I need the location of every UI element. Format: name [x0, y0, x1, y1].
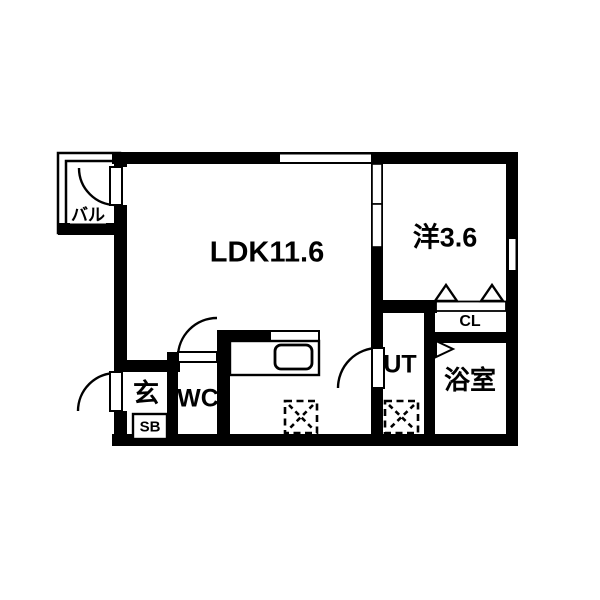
kitchen-sink-icon: [275, 345, 312, 369]
window-right-icon: [508, 238, 517, 271]
washing-machine-space-icon: [385, 401, 418, 433]
room-label-western-room: 洋3.6: [413, 225, 478, 252]
window-top-icon: [279, 154, 373, 164]
room-label-bathroom: 浴室: [444, 367, 496, 393]
appliance-space-icon: [285, 401, 317, 433]
bathroom-door-icon: [436, 341, 453, 357]
wc-walls: [167, 330, 230, 434]
room-label-ldk: LDK11.6: [210, 239, 324, 268]
room-label-entrance: 玄: [133, 380, 159, 406]
wc-door-icon: [178, 318, 217, 362]
room-label-balcony: バル: [70, 207, 106, 224]
room-label-closet: CL: [459, 314, 480, 330]
kitchen-counter: [218, 330, 319, 375]
closet-folding-door-icon: [371, 285, 506, 313]
partition-wall-ldk-bedroom: [371, 152, 383, 434]
room-label-shoe-box: SB: [140, 420, 161, 435]
utility-bath-divider-wall: [424, 313, 435, 434]
floorplan-canvas: LDK11.6 洋3.6 バル 玄 SB WC UT 浴室 CL: [0, 0, 600, 600]
entrance-door-icon: [78, 372, 122, 411]
balcony-door-icon: [79, 167, 122, 205]
room-label-wc: WC: [177, 387, 219, 412]
floorplan-drawing: [0, 0, 600, 600]
room-label-utility: UT: [383, 353, 416, 378]
utility-door-icon: [338, 348, 384, 388]
